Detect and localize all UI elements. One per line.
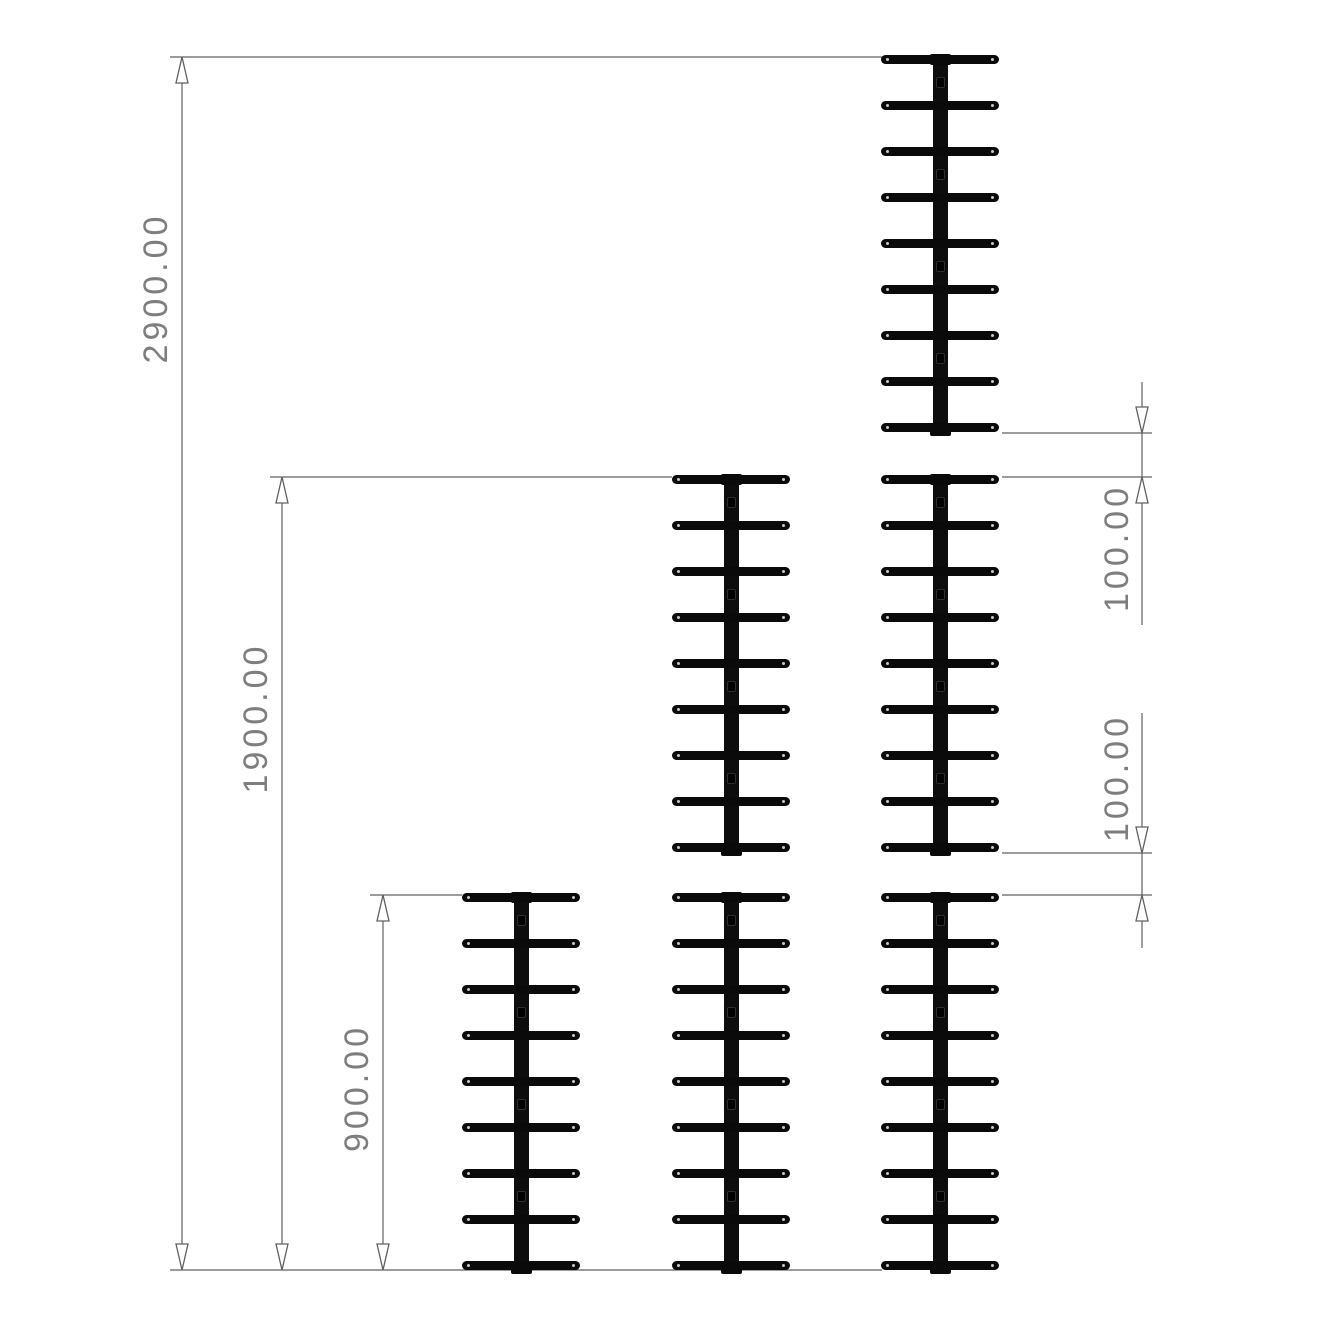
- prong-tip-hole: [886, 1080, 889, 1083]
- prong-tip-hole: [782, 1034, 785, 1037]
- prong-tip-hole: [677, 616, 680, 619]
- prong-tip-hole: [991, 478, 994, 481]
- prong-tip-hole: [782, 708, 785, 711]
- rack-prong: [462, 939, 580, 948]
- prong-tip-hole: [886, 150, 889, 153]
- rack-prong: [881, 331, 999, 340]
- prong-tip-hole: [677, 1034, 680, 1037]
- rack-prong: [672, 567, 790, 576]
- bar-mounting-hole: [728, 1100, 735, 1109]
- prong-tip-hole: [572, 1126, 575, 1129]
- bar-mounting-hole: [937, 78, 944, 87]
- rack-prong: [881, 1261, 999, 1270]
- prong-tip-hole: [467, 988, 470, 991]
- dimension-label-overall-height-three-tier: 2900.00: [136, 178, 176, 398]
- bar-mounting-hole: [937, 1008, 944, 1017]
- rack-prong: [881, 659, 999, 668]
- dimension-label-tier-gap-upper: 100.00: [1097, 438, 1137, 658]
- prong-tip-hole: [467, 1126, 470, 1129]
- rack-prong: [672, 1031, 790, 1040]
- prong-tip-hole: [572, 988, 575, 991]
- prong-tip-hole: [886, 896, 889, 899]
- prong-tip-hole: [991, 896, 994, 899]
- dimension-arrow-down-icon: [276, 1244, 288, 1270]
- rack-prong: [462, 985, 580, 994]
- dimension-label-tier-gap-lower: 100.00: [1097, 668, 1137, 888]
- rack-prong: [672, 705, 790, 714]
- rack-prong: [462, 1261, 580, 1270]
- prong-tip-hole: [677, 988, 680, 991]
- rack-prong: [672, 1169, 790, 1178]
- rack-prong: [881, 147, 999, 156]
- prong-tip-hole: [677, 570, 680, 573]
- prong-tip-hole: [677, 662, 680, 665]
- prong-tip-hole: [886, 1218, 889, 1221]
- prong-tip-hole: [467, 1264, 470, 1267]
- bar-mounting-hole: [937, 1192, 944, 1201]
- prong-tip-hole: [886, 334, 889, 337]
- prong-tip-hole: [677, 1264, 680, 1267]
- prong-tip-hole: [886, 104, 889, 107]
- rack-prong: [881, 423, 999, 432]
- rack: [461, 892, 581, 1274]
- prong-tip-hole: [572, 942, 575, 945]
- prong-tip-hole: [886, 380, 889, 383]
- dimension-arrow-up-icon: [1136, 477, 1148, 503]
- rack-prong: [672, 893, 790, 902]
- prong-tip-hole: [886, 570, 889, 573]
- rack-prong: [672, 797, 790, 806]
- prong-tip-hole: [572, 1218, 575, 1221]
- prong-tip-hole: [467, 1218, 470, 1221]
- rack: [880, 892, 1000, 1274]
- prong-tip-hole: [782, 662, 785, 665]
- prong-tip-hole: [991, 104, 994, 107]
- rack-prong: [881, 193, 999, 202]
- bar-mounting-hole: [518, 1008, 525, 1017]
- prong-tip-hole: [886, 1034, 889, 1037]
- bar-mounting-hole: [518, 1100, 525, 1109]
- prong-tip-hole: [886, 478, 889, 481]
- prong-tip-hole: [991, 942, 994, 945]
- rack-prong: [881, 939, 999, 948]
- prong-tip-hole: [467, 942, 470, 945]
- rack-prong: [881, 1215, 999, 1224]
- rack-prong: [881, 521, 999, 530]
- prong-tip-hole: [886, 196, 889, 199]
- prong-tip-hole: [572, 1172, 575, 1175]
- rack-prong: [672, 939, 790, 948]
- prong-tip-hole: [467, 1172, 470, 1175]
- rack-prong: [881, 985, 999, 994]
- prong-tip-hole: [886, 846, 889, 849]
- prong-tip-hole: [782, 1126, 785, 1129]
- prong-tip-hole: [991, 846, 994, 849]
- bar-mounting-hole: [937, 774, 944, 783]
- rack-prong: [462, 893, 580, 902]
- rack-prong: [672, 985, 790, 994]
- prong-tip-hole: [677, 1126, 680, 1129]
- prong-tip-hole: [467, 1080, 470, 1083]
- bar-mounting-hole: [937, 354, 944, 363]
- bar-mounting-hole: [937, 1100, 944, 1109]
- prong-tip-hole: [991, 570, 994, 573]
- prong-tip-hole: [991, 58, 994, 61]
- rack: [671, 474, 791, 856]
- prong-tip-hole: [991, 196, 994, 199]
- bar-mounting-hole: [728, 916, 735, 925]
- prong-tip-hole: [991, 380, 994, 383]
- rack-prong: [672, 751, 790, 760]
- prong-tip-hole: [991, 1218, 994, 1221]
- rack-prong: [881, 239, 999, 248]
- prong-tip-hole: [677, 754, 680, 757]
- rack-prong: [881, 101, 999, 110]
- rack-prong: [462, 1031, 580, 1040]
- bar-mounting-hole: [728, 1192, 735, 1201]
- bar-mounting-hole: [728, 590, 735, 599]
- prong-tip-hole: [991, 754, 994, 757]
- prong-tip-hole: [991, 616, 994, 619]
- dimension-arrow-up-icon: [276, 477, 288, 503]
- rack-prong: [672, 1123, 790, 1132]
- rack-prong: [881, 567, 999, 576]
- prong-tip-hole: [782, 754, 785, 757]
- rack-prong: [672, 843, 790, 852]
- prong-tip-hole: [886, 708, 889, 711]
- prong-tip-hole: [991, 1172, 994, 1175]
- rack-prong: [672, 475, 790, 484]
- dimension-arrow-up-icon: [176, 57, 188, 83]
- rack: [671, 892, 791, 1274]
- bar-mounting-hole: [937, 498, 944, 507]
- technical-drawing-canvas: 2900.001900.00900.00100.00100.00: [0, 0, 1322, 1322]
- prong-tip-hole: [886, 426, 889, 429]
- prong-tip-hole: [677, 524, 680, 527]
- rack-prong: [672, 659, 790, 668]
- rack-prong: [881, 893, 999, 902]
- dimension-arrow-up-icon: [377, 895, 389, 921]
- dimension-label-overall-height-one-tier: 900.00: [337, 978, 377, 1198]
- prong-tip-hole: [677, 708, 680, 711]
- prong-tip-hole: [886, 988, 889, 991]
- prong-tip-hole: [677, 1080, 680, 1083]
- prong-tip-hole: [782, 1218, 785, 1221]
- prong-tip-hole: [991, 800, 994, 803]
- prong-tip-hole: [886, 800, 889, 803]
- prong-tip-hole: [886, 1264, 889, 1267]
- prong-tip-hole: [677, 896, 680, 899]
- prong-tip-hole: [782, 524, 785, 527]
- prong-tip-hole: [991, 242, 994, 245]
- rack-prong: [881, 1169, 999, 1178]
- prong-tip-hole: [467, 896, 470, 899]
- prong-tip-hole: [991, 1034, 994, 1037]
- dimension-arrow-up-icon: [1136, 895, 1148, 921]
- rack-prong: [881, 285, 999, 294]
- prong-tip-hole: [991, 1126, 994, 1129]
- prong-tip-hole: [782, 478, 785, 481]
- rack-prong: [881, 55, 999, 64]
- dimension-arrow-down-icon: [1136, 407, 1148, 433]
- rack-prong: [672, 521, 790, 530]
- prong-tip-hole: [572, 896, 575, 899]
- prong-tip-hole: [991, 288, 994, 291]
- prong-tip-hole: [782, 896, 785, 899]
- prong-tip-hole: [991, 708, 994, 711]
- prong-tip-hole: [782, 570, 785, 573]
- prong-tip-hole: [782, 988, 785, 991]
- prong-tip-hole: [782, 1080, 785, 1083]
- prong-tip-hole: [991, 1264, 994, 1267]
- prong-tip-hole: [677, 846, 680, 849]
- prong-tip-hole: [677, 478, 680, 481]
- prong-tip-hole: [886, 1172, 889, 1175]
- rack-prong: [881, 1031, 999, 1040]
- bar-mounting-hole: [937, 916, 944, 925]
- prong-tip-hole: [782, 1264, 785, 1267]
- prong-tip-hole: [886, 524, 889, 527]
- prong-tip-hole: [677, 942, 680, 945]
- prong-tip-hole: [886, 288, 889, 291]
- prong-tip-hole: [991, 1080, 994, 1083]
- bar-mounting-hole: [937, 682, 944, 691]
- rack-prong: [462, 1077, 580, 1086]
- bar-mounting-hole: [728, 498, 735, 507]
- rack-prong: [462, 1123, 580, 1132]
- prong-tip-hole: [886, 616, 889, 619]
- rack-prong: [672, 613, 790, 622]
- rack-prong: [462, 1215, 580, 1224]
- bar-mounting-hole: [728, 774, 735, 783]
- rack-prong: [881, 475, 999, 484]
- prong-tip-hole: [782, 1172, 785, 1175]
- prong-tip-hole: [886, 662, 889, 665]
- rack-prong: [881, 613, 999, 622]
- prong-tip-hole: [467, 1034, 470, 1037]
- bar-mounting-hole: [937, 262, 944, 271]
- prong-tip-hole: [886, 1126, 889, 1129]
- dimension-arrow-down-icon: [176, 1244, 188, 1270]
- bar-mounting-hole: [728, 682, 735, 691]
- dimension-label-overall-height-two-tier: 1900.00: [236, 608, 276, 828]
- prong-tip-hole: [677, 800, 680, 803]
- rack-prong: [672, 1077, 790, 1086]
- rack-prong: [881, 1077, 999, 1086]
- prong-tip-hole: [991, 426, 994, 429]
- prong-tip-hole: [886, 942, 889, 945]
- dimension-arrow-down-icon: [1136, 827, 1148, 853]
- bar-mounting-hole: [937, 170, 944, 179]
- prong-tip-hole: [677, 1172, 680, 1175]
- prong-tip-hole: [572, 1080, 575, 1083]
- rack-prong: [881, 377, 999, 386]
- prong-tip-hole: [991, 150, 994, 153]
- prong-tip-hole: [991, 662, 994, 665]
- prong-tip-hole: [886, 242, 889, 245]
- prong-tip-hole: [782, 800, 785, 803]
- bar-mounting-hole: [728, 1008, 735, 1017]
- bar-mounting-hole: [937, 590, 944, 599]
- rack-prong: [881, 1123, 999, 1132]
- prong-tip-hole: [886, 754, 889, 757]
- rack-prong: [881, 797, 999, 806]
- prong-tip-hole: [991, 334, 994, 337]
- rack-prong: [881, 843, 999, 852]
- prong-tip-hole: [991, 524, 994, 527]
- prong-tip-hole: [572, 1034, 575, 1037]
- bar-mounting-hole: [518, 916, 525, 925]
- prong-tip-hole: [886, 58, 889, 61]
- rack-prong: [881, 751, 999, 760]
- rack-prong: [672, 1261, 790, 1270]
- dimension-arrow-down-icon: [377, 1244, 389, 1270]
- prong-tip-hole: [782, 616, 785, 619]
- prong-tip-hole: [782, 942, 785, 945]
- rack: [880, 474, 1000, 856]
- rack-prong: [462, 1169, 580, 1178]
- rack-prong: [881, 705, 999, 714]
- prong-tip-hole: [677, 1218, 680, 1221]
- rack-prong: [672, 1215, 790, 1224]
- rack: [880, 54, 1000, 436]
- dimension-lines-layer: [0, 0, 1322, 1322]
- prong-tip-hole: [782, 846, 785, 849]
- prong-tip-hole: [991, 988, 994, 991]
- prong-tip-hole: [572, 1264, 575, 1267]
- bar-mounting-hole: [518, 1192, 525, 1201]
